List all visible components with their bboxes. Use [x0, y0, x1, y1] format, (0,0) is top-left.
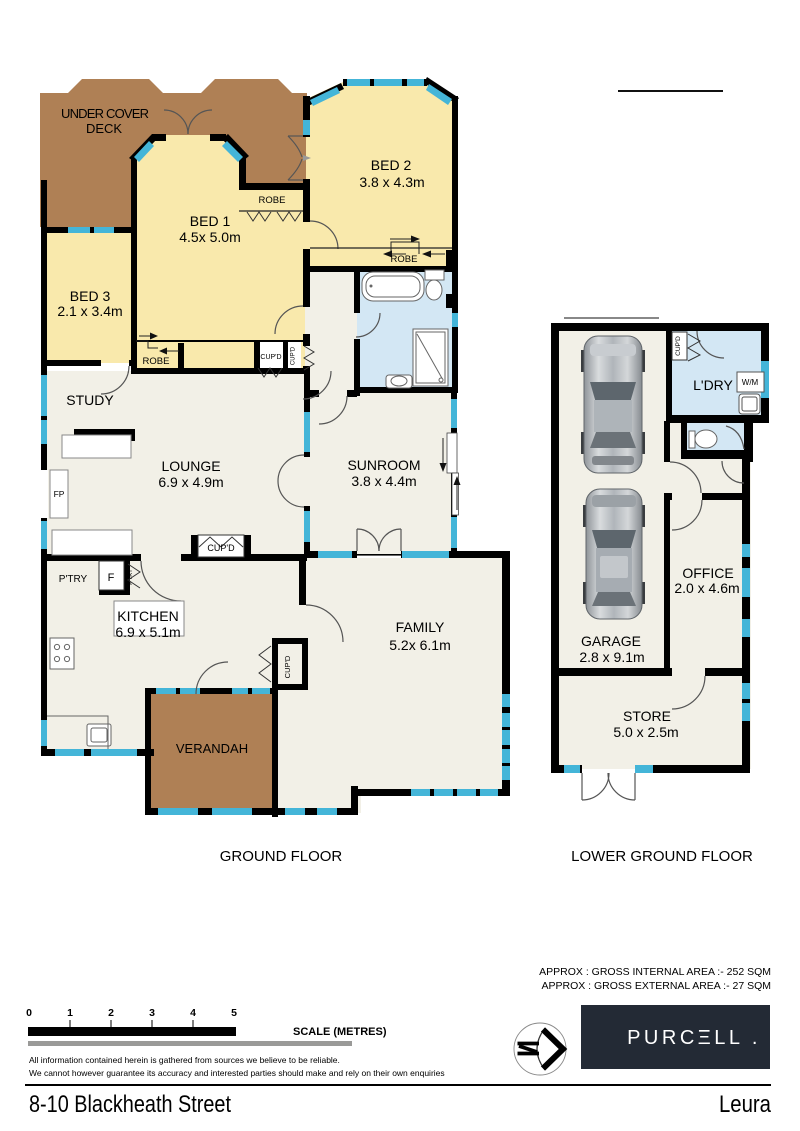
svg-text:VERANDAH: VERANDAH: [176, 741, 248, 756]
svg-text:4.5x 5.0m: 4.5x 5.0m: [179, 229, 240, 245]
svg-text:STUDY: STUDY: [66, 392, 114, 408]
svg-text:LOWER GROUND FLOOR: LOWER GROUND FLOOR: [571, 848, 753, 865]
svg-text:FAMILY: FAMILY: [396, 619, 445, 635]
svg-text:Leura: Leura: [719, 1091, 772, 1118]
svg-text:BED 3: BED 3: [70, 288, 111, 304]
svg-text:L'DRY: L'DRY: [693, 377, 733, 393]
svg-text:6.9 x 5.1m: 6.9 x 5.1m: [115, 624, 180, 640]
svg-text:2: 2: [108, 1007, 114, 1019]
svg-text:0: 0: [26, 1007, 32, 1019]
svg-text:5: 5: [231, 1007, 237, 1019]
svg-text:BED 2: BED 2: [371, 157, 412, 173]
svg-text:DECK: DECK: [86, 121, 122, 136]
svg-text:KITCHEN: KITCHEN: [117, 608, 178, 624]
svg-text:PURCΞLL .: PURCΞLL .: [627, 1027, 761, 1049]
svg-text:5.2x 6.1m: 5.2x 6.1m: [389, 637, 450, 653]
svg-text:STORE: STORE: [623, 708, 671, 724]
svg-text:P'TRY: P'TRY: [128, 569, 134, 585]
svg-text:1: 1: [67, 1007, 73, 1019]
svg-text:CUP'D: CUP'D: [675, 336, 682, 356]
svg-text:W/M: W/M: [742, 378, 759, 387]
svg-text:UNDER COVER: UNDER COVER: [61, 106, 149, 121]
svg-text:3.8 x 4.4m: 3.8 x 4.4m: [351, 473, 416, 489]
svg-text:OFFICE: OFFICE: [682, 565, 733, 581]
svg-text:CUP'D: CUP'D: [291, 346, 297, 365]
svg-text:APPROX : GROSS EXTERNAL AREA :: APPROX : GROSS EXTERNAL AREA :- 27 SQM: [541, 980, 771, 992]
svg-text:CUP'D: CUP'D: [260, 354, 281, 361]
svg-text:3: 3: [149, 1007, 155, 1019]
svg-text:BED 1: BED 1: [190, 213, 231, 229]
svg-text:F: F: [108, 572, 115, 584]
svg-text:2.0 x 4.6m: 2.0 x 4.6m: [674, 580, 739, 596]
svg-text:ROBE: ROBE: [259, 195, 286, 206]
svg-text:SUNROOM: SUNROOM: [347, 457, 420, 473]
svg-text:SCALE (METRES): SCALE (METRES): [293, 1026, 387, 1038]
svg-text:4: 4: [190, 1007, 196, 1019]
svg-text:P'TRY: P'TRY: [59, 574, 88, 585]
svg-text:CUP'D: CUP'D: [207, 543, 235, 553]
svg-text:2.1 x 3.4m: 2.1 x 3.4m: [57, 303, 122, 319]
svg-text:ROBE: ROBE: [391, 254, 418, 265]
svg-text:2.8 x 9.1m: 2.8 x 9.1m: [579, 649, 644, 665]
svg-text:3.8 x 4.3m: 3.8 x 4.3m: [359, 174, 424, 190]
svg-text:GROUND FLOOR: GROUND FLOOR: [220, 848, 343, 865]
svg-text:6.9 x 4.9m: 6.9 x 4.9m: [158, 474, 223, 490]
svg-text:FP: FP: [54, 489, 65, 499]
svg-text:8-10 Blackheath Street: 8-10 Blackheath Street: [29, 1091, 231, 1118]
svg-text:We cannot however guarantee it: We cannot however guarantee its accuracy…: [29, 1068, 445, 1078]
svg-text:ROBE: ROBE: [143, 356, 170, 367]
svg-text:All information contained here: All information contained herein is gath…: [29, 1055, 340, 1065]
svg-text:LOUNGE: LOUNGE: [161, 458, 220, 474]
svg-text:CUP'D: CUP'D: [283, 655, 292, 678]
svg-text:GARAGE: GARAGE: [581, 633, 641, 649]
svg-text:5.0 x 2.5m: 5.0 x 2.5m: [613, 724, 678, 740]
svg-text:APPROX : GROSS INTERNAL AREA :: APPROX : GROSS INTERNAL AREA :- 252 SQM: [539, 966, 771, 978]
